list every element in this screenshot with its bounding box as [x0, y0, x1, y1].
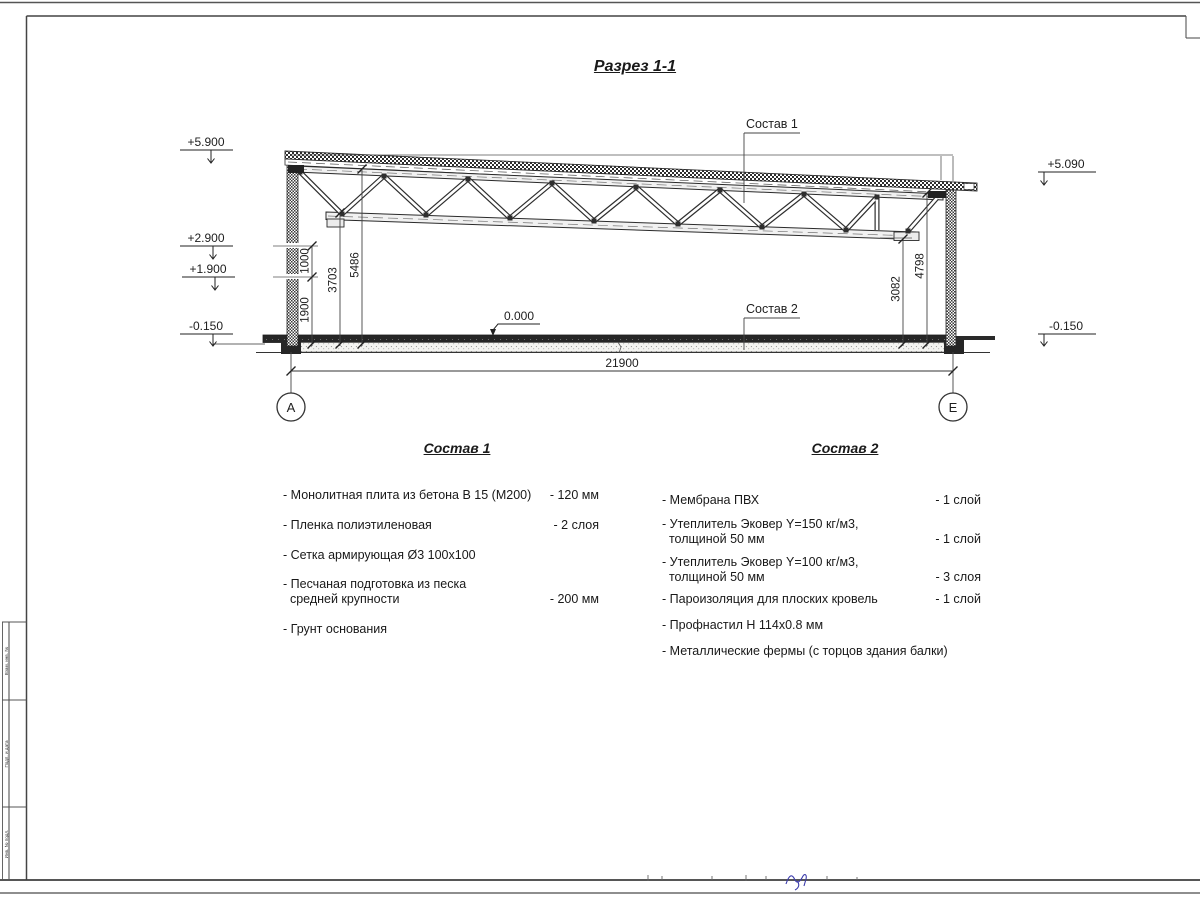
spec-item-text: - Профнастил Н 114х0.8 мм: [662, 618, 823, 633]
wall-left-joint-2: [286, 274, 300, 279]
spec-item-text: - Грунт основания: [283, 622, 387, 637]
axis-letter-e: Е: [949, 400, 958, 415]
spec2-item: - Утеплитель Эковер Y=100 кг/м3, толщино…: [662, 555, 981, 585]
total-dimension: 21900: [287, 352, 958, 393]
stamp-label-3: Инв. № подл.: [4, 830, 9, 859]
spec1-item: - Песчаная подготовка из песка средней к…: [283, 577, 599, 607]
elev-left-mid1: +2.900: [187, 231, 224, 245]
section-drawing: Взам. инв. № Подп. и дата Инв. № подл.: [0, 0, 1200, 900]
elev-left-bottom: -0.150: [189, 319, 223, 333]
spec-item-value: - 1 слой: [927, 532, 981, 547]
dim-1000: 1000: [300, 248, 312, 274]
spec2-heading: Состав 2: [790, 440, 900, 456]
label-sostav1-drawing: Состав 1: [746, 117, 798, 131]
wall-left: [287, 157, 298, 346]
spec-item-value: - 120 мм: [542, 488, 599, 503]
drawing-sheet: Взам. инв. № Подп. и дата Инв. № подл.: [0, 0, 1200, 900]
spec1-heading: Состав 1: [402, 440, 512, 456]
sand-layer: [299, 343, 946, 353]
dim-1900: 1900: [300, 297, 312, 323]
spec-item-value: - 200 мм: [542, 592, 599, 607]
elev-left-top: +5.900: [187, 135, 224, 149]
dim-5486: 5486: [350, 252, 362, 278]
bearing-pad-right: [928, 191, 946, 198]
zero-level-label: 0.000: [504, 309, 534, 323]
dim-3703: 3703: [328, 267, 340, 293]
spec-item-value: - 1 слой: [927, 592, 981, 607]
spec2-item: - Мембрана ПВХ - 1 слой: [662, 493, 981, 508]
spec2-item: - Профнастил Н 114х0.8 мм: [662, 618, 981, 633]
spec-item-text: - Сетка армирующая Ø3 100х100: [283, 548, 476, 563]
drawing-title: Разрез 1-1: [555, 58, 715, 76]
spec-item-text: - Мембрана ПВХ: [662, 493, 759, 508]
floor-slab: [213, 335, 995, 354]
spec-item-text: - Пароизоляция для плоских кровель: [662, 592, 878, 607]
axis-letter-a: А: [287, 400, 296, 415]
elev-right-top: +5.090: [1047, 157, 1084, 171]
spec1-item: - Монолитная плита из бетона В 15 (М200)…: [283, 488, 599, 503]
spec-item-text: - Утеплитель Эковер Y=150 кг/м3, толщино…: [662, 517, 858, 547]
wall-left-joint-1: [286, 243, 300, 248]
dim-4798: 4798: [915, 253, 927, 279]
spec1-item: - Грунт основания: [283, 622, 599, 637]
stamp-label-1: Взам. инв. №: [4, 647, 9, 676]
wall-right: [946, 190, 956, 346]
spec-item-value: - 2 слоя: [546, 518, 599, 533]
bottom-chord-end-plate-left: [327, 219, 344, 227]
pen-mark: [786, 875, 806, 890]
spec2-item: - Утеплитель Эковер Y=150 кг/м3, толщино…: [662, 517, 981, 547]
spec1-item: - Пленка полиэтиленовая - 2 слоя: [283, 518, 599, 533]
dim-total-width: 21900: [605, 356, 639, 370]
spec-item-value: - 3 слоя: [928, 570, 981, 585]
spec-item-text: - Металлические фермы (с торцов здания б…: [662, 644, 948, 659]
sheet-frame: [0, 3, 1200, 894]
elev-right-bottom: -0.150: [1049, 319, 1083, 333]
spec1-item: - Сетка армирующая Ø3 100х100: [283, 548, 599, 563]
zero-level-mark: 0.000: [490, 309, 540, 336]
bearing-pad-left: [288, 165, 304, 173]
spec-item-text: - Утеплитель Эковер Y=100 кг/м3, толщино…: [662, 555, 858, 585]
spec-item-value: - 1 слой: [927, 493, 981, 508]
stamp-strip-labels: Взам. инв. № Подп. и дата Инв. № подл.: [4, 647, 9, 859]
spec-item-text: - Пленка полиэтиленовая: [283, 518, 432, 533]
spec2-item: - Пароизоляция для плоских кровель - 1 с…: [662, 592, 981, 607]
spec-item-text: - Песчаная подготовка из песка средней к…: [283, 577, 466, 607]
roof-end-cap: [964, 184, 974, 190]
axis-markers: А Е: [277, 393, 967, 421]
label-sostav2-drawing: Состав 2: [746, 302, 798, 316]
elev-left-mid2: +1.900: [189, 262, 226, 276]
spec2-item: - Металлические фермы (с торцов здания б…: [662, 644, 981, 659]
spec-item-text: - Монолитная плита из бетона В 15 (М200): [283, 488, 531, 503]
stamp-label-2: Подп. и дата: [4, 740, 9, 768]
dim-3082: 3082: [891, 276, 903, 302]
